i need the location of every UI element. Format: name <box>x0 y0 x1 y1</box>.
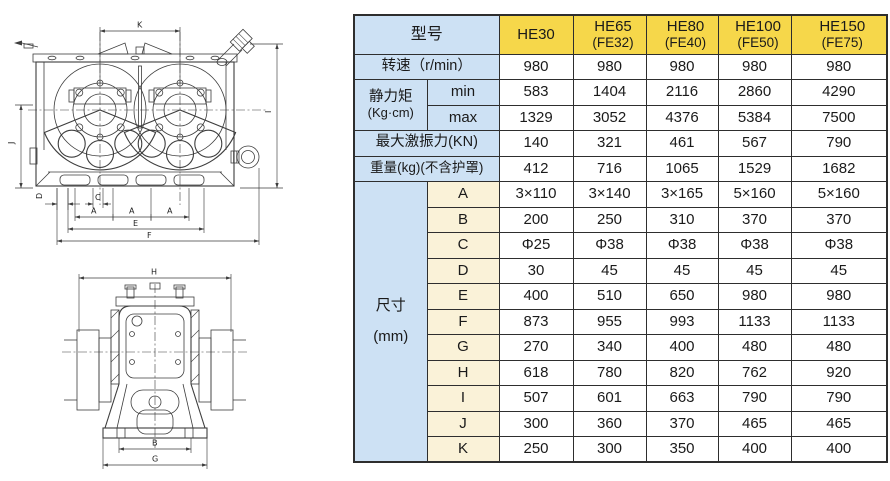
model-he30: HE30 <box>499 15 573 54</box>
moment-min-value: 4290 <box>791 80 887 106</box>
dim-label-a3: A <box>167 207 173 216</box>
dim-value: 400 <box>791 437 887 463</box>
dim-value: 1133 <box>718 309 791 335</box>
moment-max-value: 5384 <box>718 105 791 131</box>
dim-value: 873 <box>499 309 573 335</box>
spec-table-container: 型号 HE30 HE65 (FE32) HE80 (FE40) HE100 (F… <box>353 14 886 462</box>
dim-label-h: H <box>151 268 157 277</box>
dim-key-J: J <box>427 411 499 437</box>
dim-value: 340 <box>573 335 646 361</box>
dim-value: 920 <box>791 360 887 386</box>
dim-row-I: I507601663790790 <box>354 386 887 412</box>
speed-label: 转速（r/min） <box>354 54 499 80</box>
dim-value: 270 <box>499 335 573 361</box>
force-value: 140 <box>499 131 573 157</box>
model-sub: (FE40) <box>647 36 718 51</box>
dim-key-F: F <box>427 309 499 335</box>
gusset-left <box>98 43 128 54</box>
spec-table: 型号 HE30 HE65 (FE32) HE80 (FE40) HE100 (F… <box>353 14 888 463</box>
force-value: 461 <box>646 131 718 157</box>
moment-max-value: 7500 <box>791 105 887 131</box>
dim-value: Φ38 <box>718 233 791 259</box>
dim-value: 820 <box>646 360 718 386</box>
min-label: min <box>427 80 499 106</box>
dim-key-B: B <box>427 207 499 233</box>
model-he100: HE100 (FE50) <box>718 15 791 54</box>
technical-drawing: K J I D C <box>0 0 352 481</box>
corner-marker <box>14 41 38 49</box>
model-header-cell: 型号 <box>354 15 499 54</box>
mounting-slots <box>60 175 204 185</box>
weight-value: 412 <box>499 156 573 182</box>
moment-max-value: 1329 <box>499 105 573 131</box>
dim-value: 650 <box>646 284 718 310</box>
static-moment-max-row: max 1329 3052 4376 5384 7500 <box>354 105 887 131</box>
dim-value: 370 <box>791 207 887 233</box>
model-name: HE30 <box>500 27 573 44</box>
max-force-row: 最大激振力(KN) 140 321 461 567 790 <box>354 131 887 157</box>
dim-value: 370 <box>718 207 791 233</box>
speed-row: 转速（r/min） 980 980 980 980 980 <box>354 54 887 80</box>
moment-min-value: 2116 <box>646 80 718 106</box>
side-view: H B G <box>62 268 248 470</box>
dims-group-label: 尺寸(mm) <box>354 182 427 463</box>
dim-value: Φ38 <box>573 233 646 259</box>
dim-value: 400 <box>646 335 718 361</box>
dim-value: 601 <box>573 386 646 412</box>
moment-max-value: 4376 <box>646 105 718 131</box>
dim-value: 993 <box>646 309 718 335</box>
header-row: 型号 HE30 HE65 (FE32) HE80 (FE40) HE100 (F… <box>354 15 887 54</box>
dims-unit: (mm) <box>355 329 427 346</box>
dim-label-g: G <box>152 455 158 464</box>
dim-value: 762 <box>718 360 791 386</box>
weight-row: 重量(kg)(不含护罩) 412 716 1065 1529 1682 <box>354 156 887 182</box>
dim-value: 45 <box>573 258 646 284</box>
dim-label-a2: A <box>129 207 135 216</box>
dim-value: 465 <box>791 411 887 437</box>
dim-value: 250 <box>573 207 646 233</box>
static-moment-unit: (Kg·cm) <box>355 106 427 120</box>
dim-value: 480 <box>791 335 887 361</box>
dim-value: 980 <box>718 284 791 310</box>
weight-value: 716 <box>573 156 646 182</box>
dim-value: Φ25 <box>499 233 573 259</box>
model-name: HE150 <box>792 19 887 36</box>
dim-key-E: E <box>427 284 499 310</box>
dim-value: 300 <box>573 437 646 463</box>
dim-value: 370 <box>646 411 718 437</box>
front-view: K J I D C <box>7 21 283 246</box>
model-he65: HE65 (FE32) <box>573 15 646 54</box>
dim-row-C: CΦ25Φ38Φ38Φ38Φ38 <box>354 233 887 259</box>
dim-label-k: K <box>137 21 143 30</box>
dim-value: 45 <box>718 258 791 284</box>
dim-value: 5×160 <box>791 182 887 208</box>
dim-value: 30 <box>499 258 573 284</box>
dim-value: 350 <box>646 437 718 463</box>
dim-value: 955 <box>573 309 646 335</box>
dim-key-G: G <box>427 335 499 361</box>
dim-value: Φ38 <box>791 233 887 259</box>
weight-label: 重量(kg)(不含护罩) <box>354 156 499 182</box>
dim-key-H: H <box>427 360 499 386</box>
dim-value: 45 <box>646 258 718 284</box>
moment-max-value: 3052 <box>573 105 646 131</box>
dim-label-d: D <box>35 193 44 199</box>
dim-row-E: E400510650980980 <box>354 284 887 310</box>
dim-value: 780 <box>573 360 646 386</box>
dim-value: 5×160 <box>718 182 791 208</box>
dim-label-j: J <box>7 142 16 145</box>
dim-value: 310 <box>646 207 718 233</box>
dim-label-i: I <box>264 111 273 113</box>
dim-row-A: 尺寸(mm)A3×1103×1403×1655×1605×160 <box>354 182 887 208</box>
dim-value: 480 <box>718 335 791 361</box>
moment-min-value: 583 <box>499 80 573 106</box>
dim-value: 400 <box>718 437 791 463</box>
moment-min-value: 2860 <box>718 80 791 106</box>
weight-value: 1065 <box>646 156 718 182</box>
dim-value: 400 <box>499 284 573 310</box>
dim-value: 790 <box>791 386 887 412</box>
dim-value: 618 <box>499 360 573 386</box>
static-moment-min-row: 静力矩 (Kg·cm) min 583 1404 2116 2860 4290 <box>354 80 887 106</box>
dim-value: 250 <box>499 437 573 463</box>
dim-value: Φ38 <box>646 233 718 259</box>
dim-value: 790 <box>718 386 791 412</box>
force-value: 790 <box>791 131 887 157</box>
dim-value: 200 <box>499 207 573 233</box>
speed-value: 980 <box>718 54 791 80</box>
gusset-right <box>142 43 172 54</box>
dim-value: 1133 <box>791 309 887 335</box>
dim-row-D: D3045454545 <box>354 258 887 284</box>
dim-label-f: F <box>147 231 152 240</box>
model-name: HE65 <box>574 19 646 36</box>
dim-key-I: I <box>427 386 499 412</box>
static-moment-title: 静力矩 <box>355 90 427 106</box>
model-he150: HE150 (FE75) <box>791 15 887 54</box>
max-label: max <box>427 105 499 131</box>
model-name: HE80 <box>647 19 718 36</box>
dim-label-e: E <box>133 219 138 228</box>
model-name: HE100 <box>719 19 791 36</box>
dim-value: 3×110 <box>499 182 573 208</box>
dim-key-K: K <box>427 437 499 463</box>
dim-row-G: G270340400480480 <box>354 335 887 361</box>
dim-row-B: B200250310370370 <box>354 207 887 233</box>
max-force-label: 最大激振力(KN) <box>354 131 499 157</box>
dim-row-F: F87395599311331133 <box>354 309 887 335</box>
dims-title: 尺寸 <box>355 298 427 315</box>
dim-label-a1: A <box>91 207 97 216</box>
drawing-svg: K J I D C <box>0 0 352 481</box>
model-sub: (FE32) <box>574 36 646 51</box>
dim-value: 663 <box>646 386 718 412</box>
dim-value: 510 <box>573 284 646 310</box>
dim-row-J: J300360370465465 <box>354 411 887 437</box>
dim-key-A: A <box>427 182 499 208</box>
dim-value: 360 <box>573 411 646 437</box>
force-value: 567 <box>718 131 791 157</box>
speed-value: 980 <box>499 54 573 80</box>
force-value: 321 <box>573 131 646 157</box>
dim-key-D: D <box>427 258 499 284</box>
dim-value: 300 <box>499 411 573 437</box>
static-moment-label: 静力矩 (Kg·cm) <box>354 80 427 131</box>
dim-row-K: K250300350400400 <box>354 437 887 463</box>
moment-min-value: 1404 <box>573 80 646 106</box>
dim-row-H: H618780820762920 <box>354 360 887 386</box>
model-sub: (FE75) <box>792 36 887 51</box>
dim-value: 3×140 <box>573 182 646 208</box>
speed-value: 980 <box>791 54 887 80</box>
model-sub: (FE50) <box>719 36 791 51</box>
dim-label-c: C <box>95 193 101 202</box>
dim-key-C: C <box>427 233 499 259</box>
dim-value: 465 <box>718 411 791 437</box>
eye-bolt <box>231 146 259 168</box>
spec-sheet-page: { "colors": { "page_bg": "#ffffff", "hea… <box>0 0 890 481</box>
dim-value: 45 <box>791 258 887 284</box>
weight-value: 1529 <box>718 156 791 182</box>
dim-value: 3×165 <box>646 182 718 208</box>
speed-value: 980 <box>646 54 718 80</box>
dim-value: 980 <box>791 284 887 310</box>
dim-value: 507 <box>499 386 573 412</box>
dim-label-b: B <box>152 439 158 448</box>
model-he80: HE80 (FE40) <box>646 15 718 54</box>
speed-value: 980 <box>573 54 646 80</box>
weight-value: 1682 <box>791 156 887 182</box>
